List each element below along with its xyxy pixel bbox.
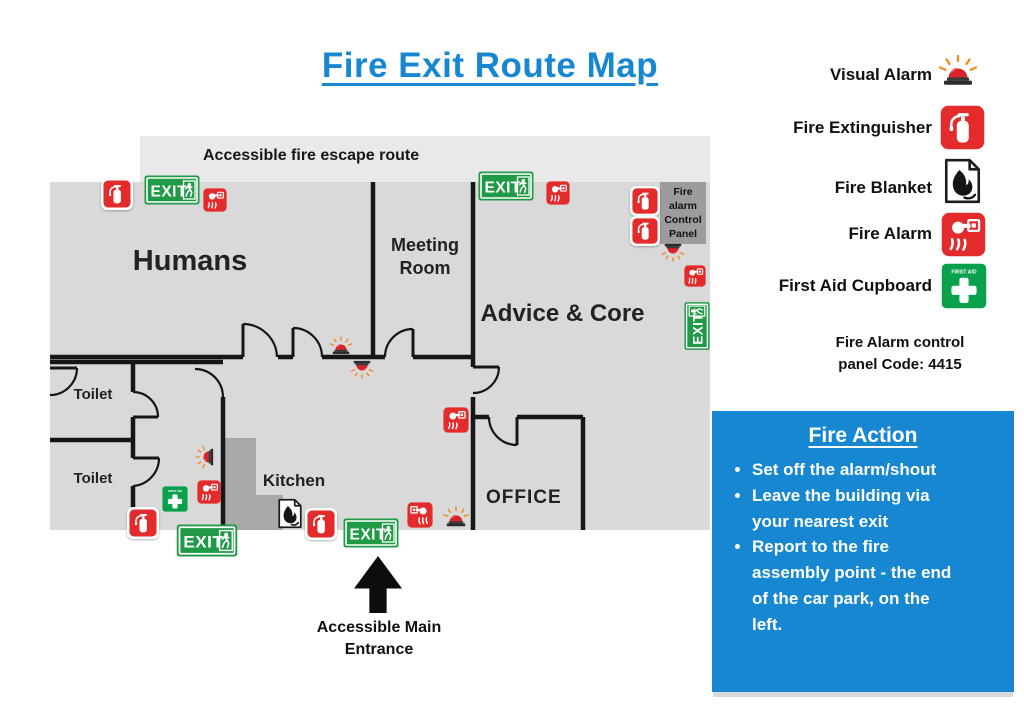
entrance-arrow-icon — [354, 556, 402, 613]
fire-action-bullet: Report to the fire assembly point - the … — [752, 534, 960, 637]
fire-extinguisher-icon — [127, 507, 159, 539]
page-title: Fire Exit Route Map — [250, 46, 730, 86]
fire-action-bullet: Set off the alarm/shout — [752, 457, 960, 483]
exit-sign-icon — [343, 517, 399, 549]
exit-sign-icon — [144, 175, 200, 205]
legend-label-fire-extinguisher: Fire Extinguisher — [700, 118, 932, 138]
room-label-advice-core: Advice & Core — [480, 298, 645, 329]
exit-sign-icon — [684, 297, 710, 355]
visual-alarm-icon — [660, 241, 686, 263]
accessible-route-label: Accessible fire escape route — [203, 147, 419, 165]
entrance-label: Accessible Main Entrance — [308, 617, 450, 662]
room-label-office: OFFICE — [486, 487, 556, 509]
visual-alarm-icon — [441, 505, 471, 529]
legend-label-visual-alarm: Visual Alarm — [700, 65, 932, 85]
room-label-kitchen: Kitchen — [258, 471, 330, 491]
legend-label-fire-blanket: Fire Blanket — [700, 178, 932, 198]
fire-alarm-icon — [407, 502, 433, 528]
fire-extinguisher-icon — [940, 105, 985, 150]
exit-sign-icon — [478, 171, 534, 201]
room-label-meeting-room: Meeting Room — [380, 234, 470, 281]
exit-sign-icon — [176, 524, 238, 557]
fire-extinguisher-icon — [630, 216, 660, 246]
fire-extinguisher-icon — [305, 508, 337, 540]
legend-label-fire-alarm: Fire Alarm — [700, 224, 932, 244]
fire-alarm-icon — [203, 188, 227, 212]
fire-action-list: Set off the alarm/shout Leave the buildi… — [730, 457, 996, 638]
fire-alarm-icon — [546, 181, 570, 205]
first-aid-cupboard-icon — [941, 263, 987, 309]
fire-alarm-icon — [941, 212, 986, 257]
fire-alarm-icon — [197, 480, 221, 504]
fire-extinguisher-icon — [630, 186, 660, 216]
room-label-humans: Humans — [110, 245, 270, 278]
visual-alarm-icon — [328, 335, 354, 357]
fire-alarm-icon — [443, 407, 469, 433]
visual-alarm-icon — [194, 444, 216, 470]
fire-blanket-icon — [277, 498, 303, 529]
fire-blanket-icon — [943, 157, 982, 205]
fire-action-bullet: Leave the building via your nearest exit — [752, 483, 960, 535]
legend-label-first-aid-cupboard: First Aid Cupboard — [700, 276, 932, 296]
room-label-toilet-upper: Toilet — [63, 386, 123, 403]
fire-action-title: Fire Action — [730, 424, 996, 448]
visual-alarm-icon — [349, 358, 375, 380]
first-aid-cupboard-icon — [162, 486, 188, 512]
room-label-toilet-lower: Toilet — [63, 470, 123, 487]
control-panel-code-note: Fire Alarm control panel Code: 4415 — [815, 332, 985, 376]
fire-action-box: Fire Action Set off the alarm/shout Leav… — [712, 411, 1014, 692]
visual-alarm-icon — [936, 53, 980, 89]
fire-alarm-icon — [684, 265, 706, 287]
fire-extinguisher-icon — [101, 178, 133, 210]
